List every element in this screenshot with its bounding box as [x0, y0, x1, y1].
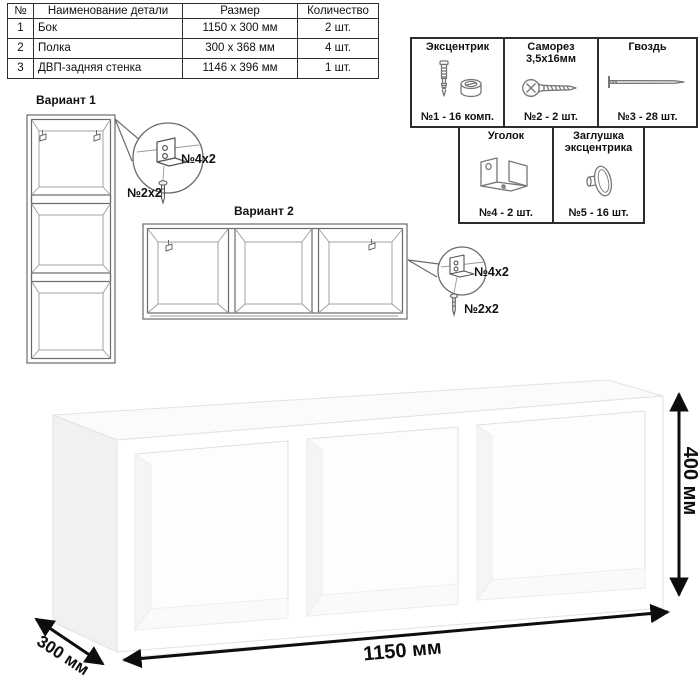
part-name: Полка	[34, 39, 183, 59]
angle-bracket-glyph	[481, 158, 527, 191]
hardware-cell-cap: Заглушка эксцентрика №5 - 16 шт.	[552, 126, 645, 224]
shelf-body	[53, 380, 663, 658]
screw-glyph	[523, 80, 576, 97]
table-row: 2 Полка 300 х 368 мм 4 шт.	[8, 39, 379, 59]
callout-screw-icon	[451, 294, 458, 315]
hardware-cell-eccentric: Эксцентрик	[410, 37, 505, 128]
hardware-cell-screw: Саморез 3,5х16мм №2 - 2 шт.	[503, 37, 599, 128]
hardware-count: №3 - 28 шт.	[617, 111, 677, 123]
nail-glyph	[609, 76, 684, 88]
angle-bracket-icon	[461, 142, 551, 207]
hardware-count: №2 - 2 шт.	[524, 111, 578, 123]
variant1-screw-label: №2х2	[127, 186, 162, 200]
shelf-3d-model: 1150 мм 400 мм 300 мм	[0, 370, 700, 690]
hardware-title: Уголок	[488, 130, 524, 142]
part-size: 1146 х 396 мм	[183, 59, 298, 79]
assembly-instruction-sheet: № Наименование детали Размер Количество …	[0, 0, 700, 690]
variant1-callout: №4х2 №2х2	[115, 119, 216, 203]
cam-lock-glyph	[461, 80, 481, 97]
hardware-count: №1 - 16 комп.	[421, 111, 494, 123]
hardware-cell-bracket: Уголок №4 - 2 шт.	[458, 126, 554, 224]
variant2-bracket-label: №4х2	[474, 265, 509, 279]
col-header-name: Наименование детали	[34, 4, 183, 19]
dowel-glyph	[440, 61, 448, 96]
hardware-title: Эксцентрик	[426, 41, 489, 53]
compartment-opening	[135, 441, 288, 630]
mounted-bracket-icon	[40, 130, 100, 141]
part-size: 1150 х 300 мм	[183, 19, 298, 39]
nail-icon	[600, 53, 695, 111]
variant2-callout: №4х2 №2х2	[408, 247, 509, 316]
col-header-qty: Количество	[298, 4, 379, 19]
part-num: 2	[8, 39, 34, 59]
table-row: 1 Бок 1150 х 300 мм 2 шт.	[8, 19, 379, 39]
variant1-bracket-label: №4х2	[181, 152, 216, 166]
height-dimension-label: 400 мм	[679, 447, 700, 516]
part-num: 3	[8, 59, 34, 79]
compartment-opening	[477, 411, 645, 600]
part-size: 300 х 368 мм	[183, 39, 298, 59]
hardware-title: Саморез 3,5х16мм	[506, 41, 596, 66]
hardware-count: №5 - 16 шт.	[568, 207, 628, 219]
screw-icon	[506, 66, 596, 111]
part-qty: 2 шт.	[298, 19, 379, 39]
width-dimension-label: 1150 мм	[362, 637, 442, 666]
part-name: ДВП-задняя стенка	[34, 59, 183, 79]
hardware-cell-nail: Гвоздь №3 - 28 шт.	[597, 37, 698, 128]
part-qty: 1 шт.	[298, 59, 379, 79]
part-name: Бок	[34, 19, 183, 39]
cam-cap-icon	[555, 155, 642, 207]
cam-cap-glyph	[587, 164, 614, 197]
hardware-title: Гвоздь	[628, 41, 666, 53]
variant2-cabinet	[143, 224, 407, 319]
compartment-opening	[307, 427, 458, 616]
col-header-num: №	[8, 4, 34, 19]
variant2-screw-label: №2х2	[464, 302, 499, 316]
col-header-size: Размер	[183, 4, 298, 19]
cam-dowel-icon	[413, 53, 502, 111]
hardware-title: Заглушка эксцентрика	[555, 130, 642, 155]
parts-table-header-row: № Наименование детали Размер Количество	[8, 4, 379, 19]
mounted-bracket-icon	[166, 239, 375, 251]
variant1-cabinet	[27, 115, 115, 363]
variant1-title: Вариант 1	[36, 93, 96, 107]
parts-table: № Наименование детали Размер Количество …	[7, 3, 379, 79]
table-row: 3 ДВП-задняя стенка 1146 х 396 мм 1 шт.	[8, 59, 379, 79]
part-num: 1	[8, 19, 34, 39]
dimension-height: 400 мм	[679, 394, 700, 595]
part-qty: 4 шт.	[298, 39, 379, 59]
variant2-drawing: №4х2 №2х2	[140, 216, 512, 332]
